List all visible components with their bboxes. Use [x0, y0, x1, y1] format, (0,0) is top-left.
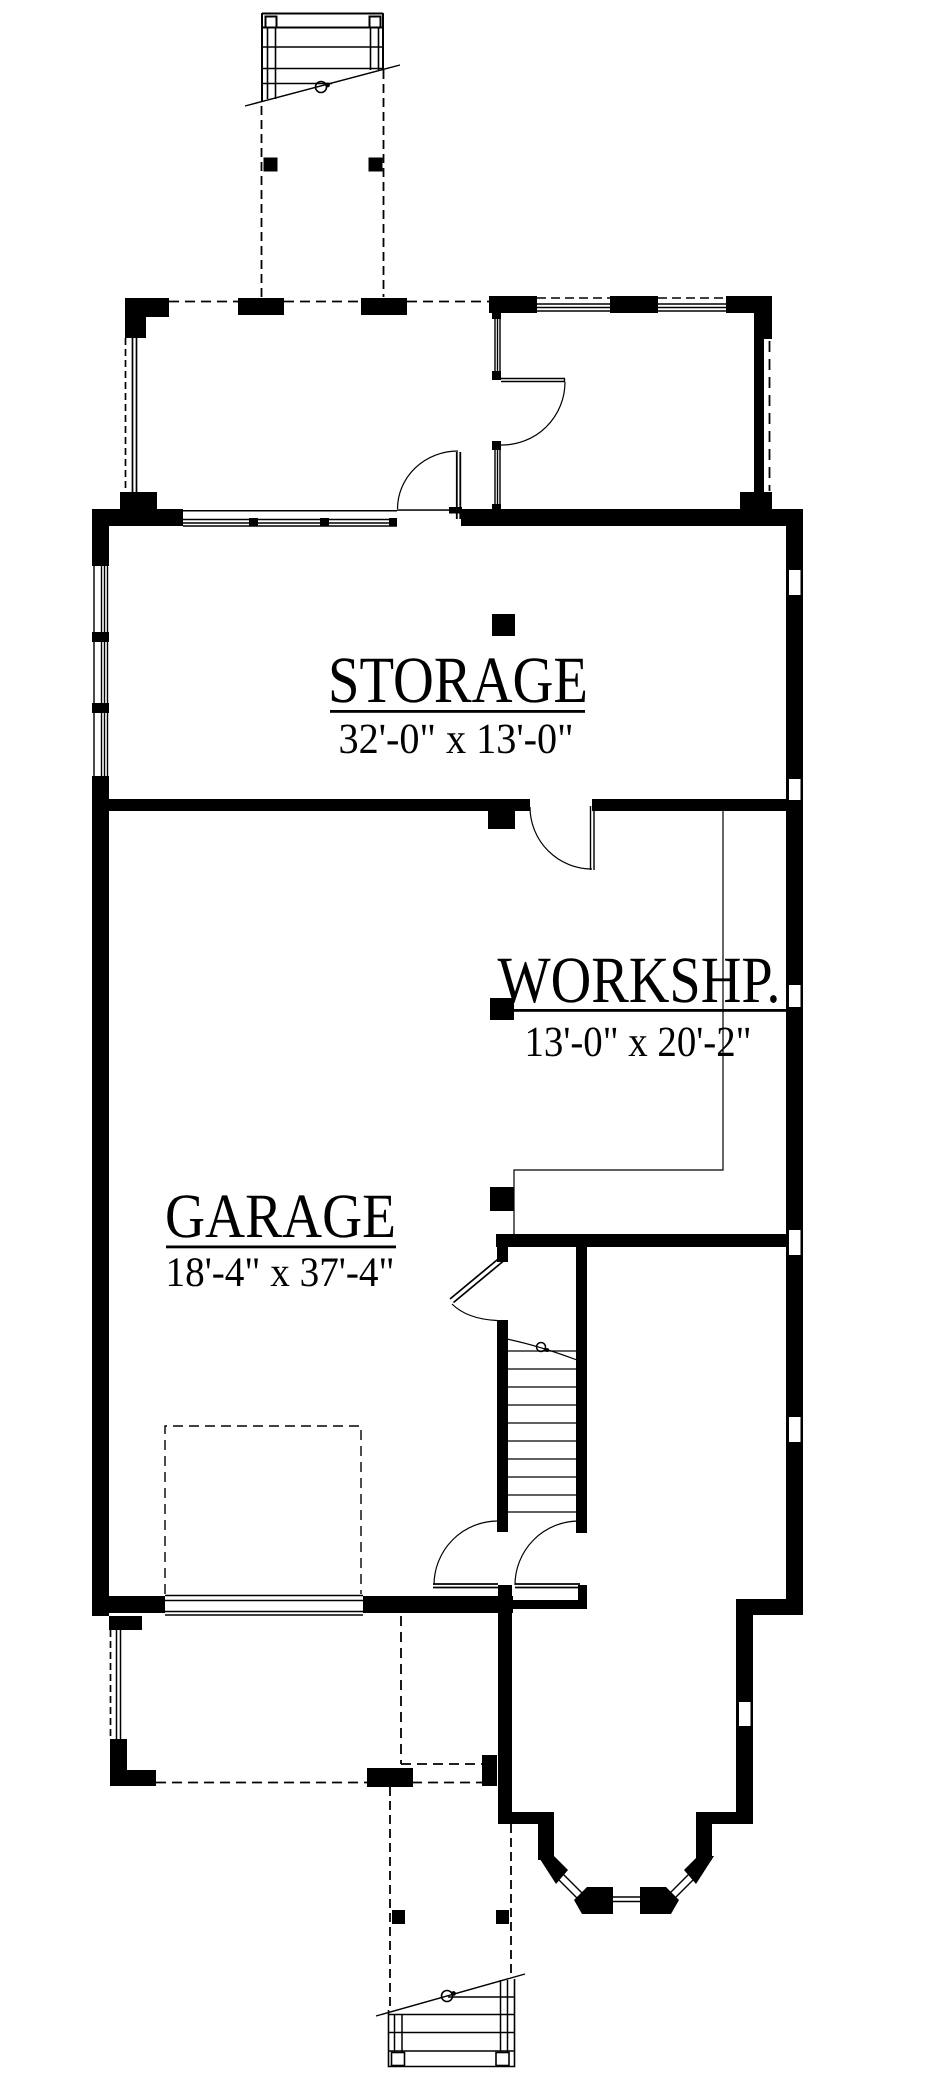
- svg-text:32'-0" x 13'-0": 32'-0" x 13'-0": [339, 716, 574, 763]
- svg-text:GARAGE: GARAGE: [165, 1181, 396, 1251]
- svg-text:18'-4" x 37'-4": 18'-4" x 37'-4": [166, 1250, 395, 1296]
- svg-text:13'-0" x 20'-2": 13'-0" x 20'-2": [525, 1019, 752, 1066]
- svg-text:WORKSHP.: WORKSHP.: [498, 944, 781, 1017]
- svg-text:STORAGE: STORAGE: [328, 644, 588, 717]
